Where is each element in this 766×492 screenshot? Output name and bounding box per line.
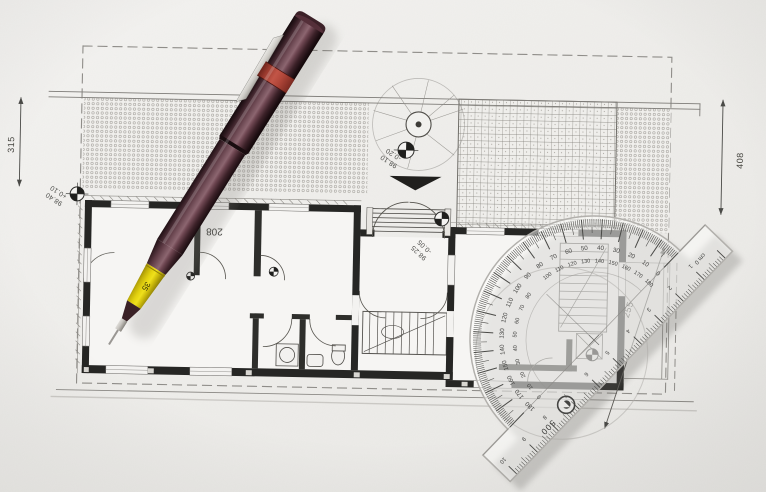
vignette-overlay (0, 0, 766, 492)
photo-canvas: 315 408 255 208 98.40 +0.10 98.10 -0.20 … (0, 0, 766, 492)
photo-architectural-plan: 315 408 255 208 98.40 +0.10 98.10 -0.20 … (0, 0, 766, 492)
